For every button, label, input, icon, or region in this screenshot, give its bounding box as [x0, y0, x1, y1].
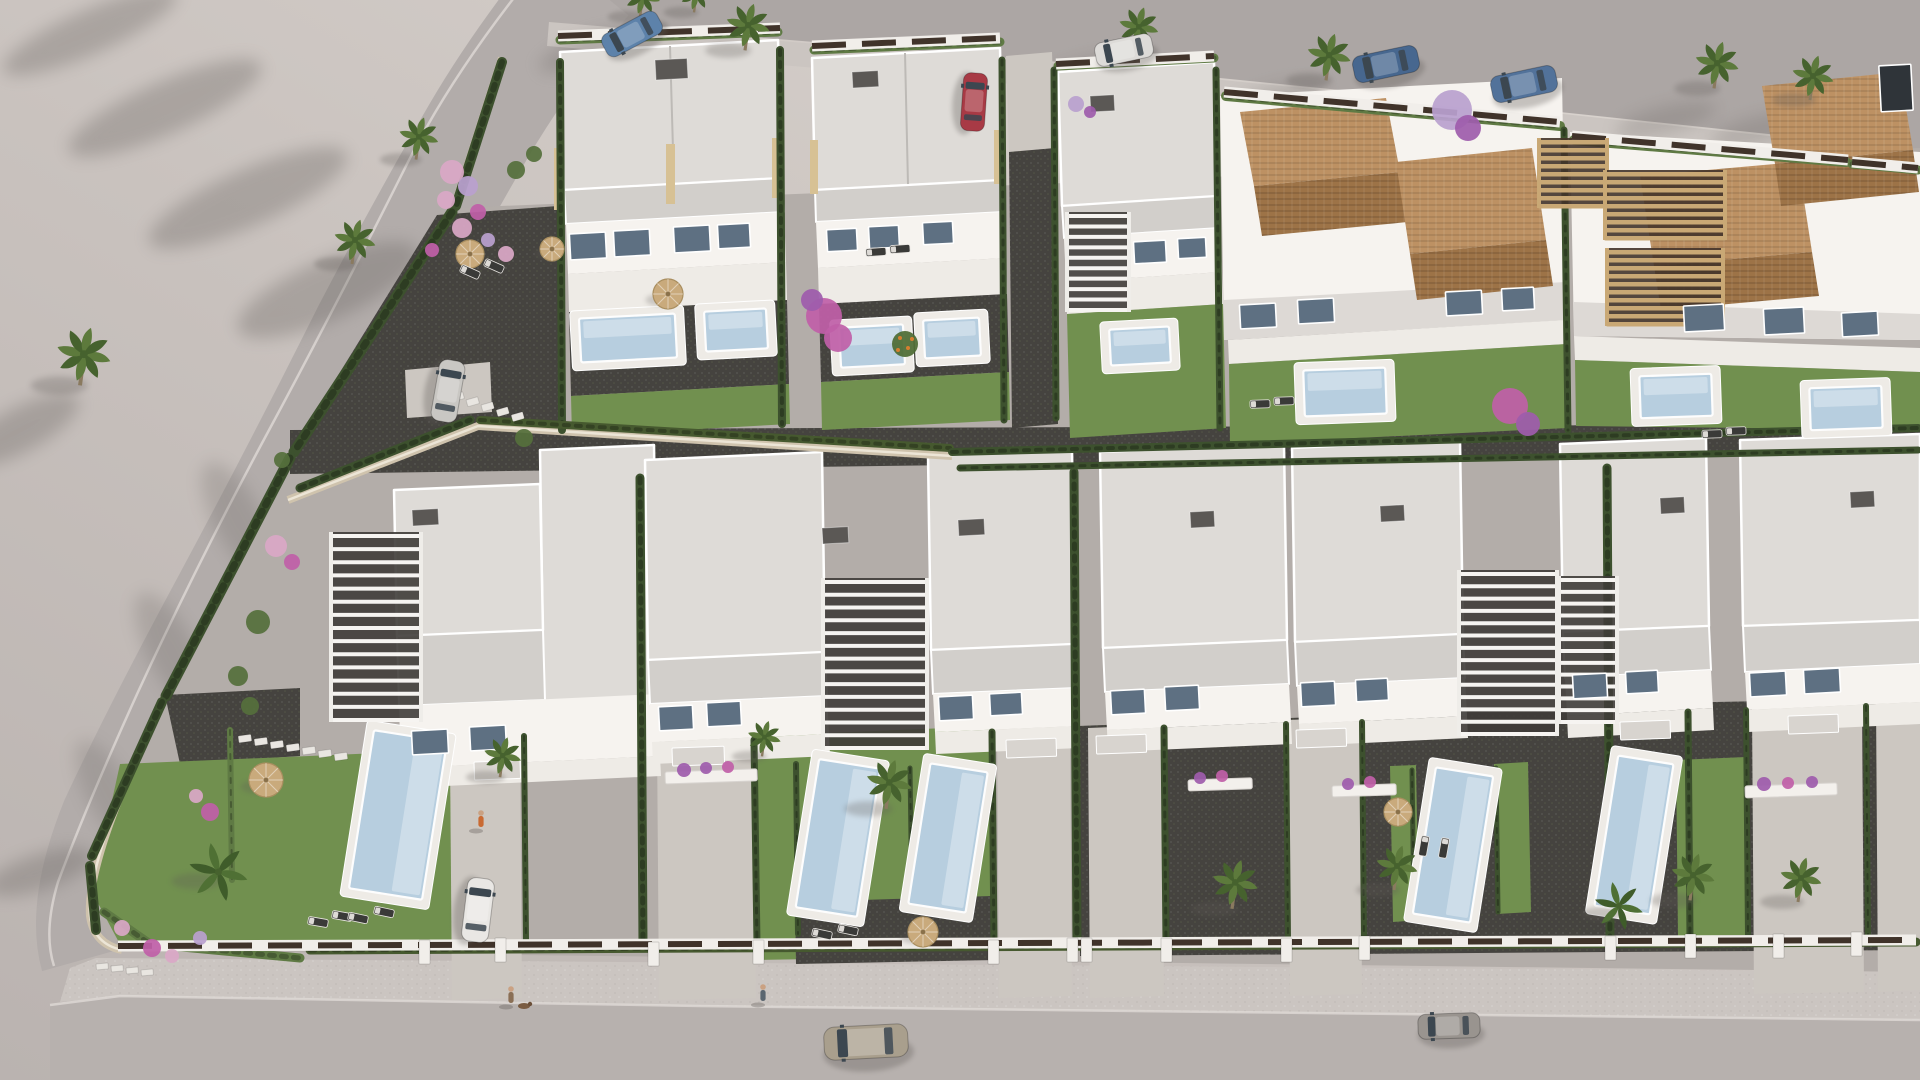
flower-bush — [193, 931, 207, 945]
pergola-slat — [822, 720, 928, 724]
car-windshield — [837, 1029, 849, 1057]
pergola-slat — [1558, 720, 1618, 724]
pergola-slat — [1458, 658, 1558, 662]
flower-bush — [898, 336, 902, 340]
pergola-rail — [821, 578, 825, 750]
pool-reflection — [708, 312, 763, 330]
parasol-pole — [264, 778, 269, 783]
pergola-slat — [330, 534, 422, 538]
pergola-slat — [1066, 287, 1130, 291]
pergola-slat — [1066, 308, 1130, 312]
roof-hatch — [822, 527, 849, 544]
pergola-rail — [419, 532, 423, 722]
flower-bush — [1194, 772, 1206, 784]
flower-bush — [1084, 106, 1096, 118]
window-glass — [1625, 670, 1658, 694]
parasol-pole — [666, 292, 671, 297]
palm-crown — [1394, 863, 1400, 869]
pergola-slat — [330, 613, 422, 617]
garden-bush — [515, 429, 533, 447]
pergola-slat — [1066, 235, 1130, 239]
pool-reflection — [1643, 377, 1708, 395]
gate-post — [753, 940, 764, 964]
flower-bush — [481, 233, 495, 247]
swimming-pool — [1630, 365, 1722, 426]
pergola-slat — [1066, 266, 1130, 270]
car-windshield — [1428, 1016, 1436, 1036]
lounger-pillow — [333, 911, 339, 918]
pergola-slat — [1066, 214, 1130, 218]
villa-roof-lower — [931, 644, 1077, 694]
sun-lounger — [1726, 427, 1746, 436]
swimming-pool — [1800, 377, 1892, 438]
palm-crown — [1616, 903, 1622, 909]
garage-door — [1296, 728, 1347, 748]
pergola-slat — [330, 652, 422, 656]
garden-gravel — [1009, 148, 1058, 428]
car-windshield — [965, 82, 984, 90]
window-glass — [1239, 303, 1276, 329]
pergola-slat — [1604, 228, 1726, 233]
window-glass — [1763, 307, 1804, 335]
person-shadow — [499, 1005, 513, 1010]
pergola-slat — [330, 692, 422, 696]
window-glass — [1683, 304, 1724, 332]
stepping-stone — [238, 734, 252, 743]
pergola-slat — [1538, 204, 1608, 209]
car-rear-window — [1462, 1016, 1469, 1035]
garden-bush — [228, 666, 248, 686]
car-mirror — [840, 1025, 844, 1028]
roof-hatch — [1850, 491, 1875, 508]
roof-hatch — [655, 58, 688, 80]
pergola-slat — [1458, 707, 1558, 711]
villa-roof — [1058, 62, 1218, 206]
palm-crown — [1798, 875, 1804, 881]
pergola-rail — [1537, 138, 1541, 208]
car-roof — [436, 376, 460, 403]
car-rear-window — [884, 1027, 894, 1054]
flower-bush — [1782, 777, 1794, 789]
dog-head — [528, 1002, 532, 1006]
pool-reflection — [1113, 330, 1166, 347]
stone-stair-wall — [666, 144, 675, 204]
pergola-slat — [1538, 180, 1608, 185]
pool-reflection — [1307, 371, 1382, 391]
pergola-slat — [1538, 188, 1608, 193]
pergola-slat — [330, 718, 422, 722]
flower-bush — [284, 554, 300, 570]
villa-roof — [928, 450, 1075, 650]
pergola-slat — [1558, 637, 1618, 641]
pergola-rail — [1457, 570, 1461, 736]
garden-bush — [274, 452, 290, 468]
stepping-stone — [302, 746, 316, 755]
driveway — [1752, 704, 1864, 994]
pergola-slat — [822, 733, 928, 737]
gate-post — [1081, 938, 1092, 962]
villa-roof-lower — [648, 652, 827, 704]
pergola-slat — [1558, 590, 1618, 594]
lounger-pillow — [867, 249, 872, 255]
pergola-slat — [1458, 646, 1558, 650]
window-glass — [1164, 685, 1199, 711]
lounger-pillow — [309, 917, 315, 924]
gate-post — [1605, 936, 1616, 960]
window-glass — [1841, 311, 1878, 337]
window-glass — [717, 223, 750, 249]
pergola-slat — [1066, 277, 1130, 281]
pergola-slat — [1458, 597, 1558, 601]
pergola-slat — [822, 644, 928, 648]
window-glass — [706, 701, 741, 727]
palm-crown — [1810, 73, 1816, 79]
gate-post — [988, 940, 999, 964]
flower-bush — [722, 761, 734, 773]
pergola-slat — [1558, 602, 1618, 606]
pergola-slat — [330, 639, 422, 643]
window-glass — [1749, 671, 1786, 697]
flower-bush — [201, 803, 219, 821]
driveway — [450, 748, 522, 1000]
gray-car-street — [1417, 1010, 1485, 1049]
driveway — [1006, 52, 1055, 152]
garden-bush — [507, 161, 525, 179]
flower-bush — [458, 176, 478, 196]
pergola-slat — [330, 679, 422, 683]
roof-hatch — [412, 509, 439, 526]
pergola-rail — [1615, 576, 1619, 724]
flower-bush — [452, 218, 472, 238]
palm-crown — [500, 753, 505, 758]
villa-roof — [1100, 444, 1287, 648]
swimming-pool — [695, 300, 778, 360]
pergola-slat — [1604, 196, 1726, 201]
flower-bush — [498, 246, 514, 262]
window-glass — [469, 725, 506, 751]
lounger-pillow — [1251, 401, 1256, 407]
pool-reflection — [1813, 389, 1878, 407]
sun-lounger — [890, 244, 911, 253]
flower-bush — [906, 346, 910, 350]
pergola-rail — [1603, 170, 1607, 240]
villa-roof — [645, 452, 825, 660]
pergola-slat — [1558, 661, 1618, 665]
pergola-slat — [1538, 196, 1608, 201]
palm-crown — [745, 22, 751, 28]
stepping-stone — [270, 740, 284, 749]
window-glass — [411, 729, 448, 755]
garage-door — [1788, 714, 1839, 734]
lounger-pillow — [1422, 837, 1429, 843]
pergola-slat — [1606, 258, 1724, 263]
villa-roof — [1292, 440, 1463, 642]
garden-bush — [246, 610, 270, 634]
garden-bush — [892, 331, 918, 357]
person-head — [508, 986, 514, 992]
pergola-slat — [822, 746, 928, 750]
stepping-stone — [96, 963, 108, 970]
villa-roof-lower — [1743, 620, 1920, 672]
palm-crown — [80, 350, 88, 358]
window-glass — [658, 705, 693, 731]
gate-post — [1773, 934, 1784, 958]
pergola-slat — [1066, 224, 1130, 228]
window-glass — [989, 692, 1022, 716]
stepping-stone — [318, 749, 332, 758]
pergola-slat — [1458, 621, 1558, 625]
driveway — [1288, 717, 1362, 996]
car-roof — [466, 895, 490, 922]
pergola-slat — [822, 669, 928, 673]
pergola-slat — [1604, 180, 1726, 185]
car-mirror — [1431, 1038, 1435, 1041]
pergola-slat — [1558, 649, 1618, 653]
pergola-rail — [1605, 248, 1609, 326]
pergola-slat — [330, 665, 422, 669]
flower-bush — [1364, 776, 1376, 788]
lounger-pillow — [1442, 839, 1449, 845]
window-glass — [1879, 64, 1913, 112]
pergola-slat — [330, 600, 422, 604]
car-roof — [1436, 1016, 1460, 1036]
gate-post — [495, 938, 506, 962]
flower-bush — [700, 762, 712, 774]
car-roof — [964, 89, 983, 112]
pergola-slat — [1606, 274, 1724, 279]
pergola-slat — [1538, 156, 1608, 161]
window-glass — [569, 232, 606, 260]
villa-roof — [1740, 434, 1920, 626]
gate-post — [1161, 938, 1172, 962]
pergola-slat — [1604, 188, 1726, 193]
pergola-slat — [1606, 266, 1724, 271]
pergola-slat — [822, 657, 928, 661]
flower-bush — [470, 204, 486, 220]
pergola-slat — [330, 547, 422, 551]
pergola-slat — [1558, 708, 1618, 712]
pergola-slat — [822, 682, 928, 686]
lounger-pillow — [891, 246, 896, 252]
car-mirror — [492, 892, 495, 896]
window-glass — [1177, 237, 1206, 258]
palm-crown — [1232, 879, 1239, 886]
pergola-slat — [1458, 683, 1558, 687]
pergola-slat — [330, 626, 422, 630]
gate-post — [419, 940, 430, 964]
roof-hatch — [1380, 505, 1405, 522]
car-mirror — [986, 85, 989, 89]
window-glass — [673, 225, 710, 253]
pergola-slat — [330, 587, 422, 591]
person-shadow — [469, 829, 483, 834]
lounger-pillow — [1703, 431, 1708, 437]
flower-bush — [1342, 778, 1354, 790]
pergola-slat — [822, 695, 928, 699]
roof-hatch — [958, 519, 985, 536]
lounger-pillow — [1275, 398, 1280, 404]
palm-crown — [1326, 52, 1332, 58]
pergola-slat — [822, 606, 928, 610]
gate-post — [648, 942, 659, 966]
timber-pergola — [1537, 138, 1609, 209]
window-glass — [1300, 681, 1335, 707]
flower-bush — [1068, 96, 1084, 112]
lounger-pillow — [1727, 428, 1732, 434]
roof-hatch — [1190, 511, 1215, 528]
person-body — [760, 990, 765, 1001]
pergola-slat — [1606, 298, 1724, 303]
pergola-slat — [1458, 720, 1558, 724]
pergola-slat — [1604, 212, 1726, 217]
stepping-stone — [111, 965, 123, 972]
pergola-slat — [1558, 625, 1618, 629]
palm-crown — [1714, 60, 1720, 66]
pergola-slat — [1066, 256, 1130, 260]
white-pergola — [1557, 576, 1619, 724]
flower-bush — [677, 763, 691, 777]
pergola-rail — [329, 532, 333, 722]
pergola-slat — [1538, 140, 1608, 145]
pergola-slat — [1538, 148, 1608, 153]
palm-crown — [762, 735, 767, 740]
pergola-slat — [1458, 670, 1558, 674]
terracotta-roof — [1396, 148, 1546, 254]
stone-stair-wall — [810, 140, 818, 194]
scene-canvas — [0, 0, 1920, 1080]
flower-bush — [265, 535, 287, 557]
gate-post — [1067, 938, 1078, 962]
garden-bush — [241, 697, 259, 715]
flower-bush — [1757, 777, 1771, 791]
parasol-pole — [921, 930, 926, 935]
flower-bush — [189, 789, 203, 803]
white-pergola — [821, 578, 929, 750]
flower-bush — [1516, 412, 1540, 436]
car-mirror — [842, 1059, 846, 1062]
sun-lounger — [866, 247, 887, 256]
palm-crown — [416, 134, 422, 140]
white-pergola — [329, 532, 423, 722]
pergola-slat — [330, 573, 422, 577]
window-glass — [922, 221, 953, 245]
sun-lounger — [1274, 397, 1294, 406]
pergola-slat — [1604, 236, 1726, 241]
pergola-slat — [1558, 578, 1618, 582]
garage-door — [1096, 734, 1147, 754]
sun-lounger — [1702, 430, 1722, 439]
pergola-slat — [1604, 172, 1726, 177]
person-body — [478, 816, 483, 827]
garden-lawn — [821, 372, 1010, 430]
window-glass — [1445, 290, 1482, 316]
garage-door — [1006, 738, 1057, 758]
palm-crown — [1136, 24, 1142, 30]
garage-door — [1620, 720, 1671, 740]
pergola-slat — [1606, 290, 1724, 295]
gate-post — [1281, 938, 1292, 962]
window-glass — [613, 229, 650, 257]
stepping-stone — [254, 737, 268, 746]
sun-lounger — [1250, 400, 1270, 409]
flower-bush — [801, 289, 823, 311]
aerial-render-of-villa-development — [0, 0, 1920, 1080]
person-body — [508, 992, 513, 1003]
car-mirror — [961, 84, 964, 88]
roof-hatch — [852, 71, 879, 88]
person-head — [760, 984, 766, 990]
pergola-slat — [822, 631, 928, 635]
roof-hatch — [1660, 497, 1685, 514]
flower-bush — [1455, 115, 1481, 141]
pergola-rail — [1065, 212, 1069, 312]
flower-bush — [824, 324, 852, 352]
pergola-slat — [1458, 572, 1558, 576]
gate-post — [1359, 936, 1370, 960]
pergola-slat — [1458, 634, 1558, 638]
pergola-slat — [330, 560, 422, 564]
palm-crown — [1690, 872, 1696, 878]
pergola-slat — [1558, 614, 1618, 618]
window-glass — [1133, 240, 1166, 264]
flower-bush — [1216, 770, 1228, 782]
stepping-stone — [286, 743, 300, 752]
driveway — [1088, 725, 1164, 998]
pergola-slat — [1066, 245, 1130, 249]
gate-post — [1685, 934, 1696, 958]
pergola-slat — [1458, 732, 1558, 736]
stepping-stone — [141, 969, 153, 976]
swimming-pool — [914, 309, 991, 367]
person-head — [478, 810, 484, 816]
white-pergola — [1457, 570, 1559, 736]
pergola-rail — [925, 578, 929, 750]
pergola-slat — [1606, 250, 1724, 255]
window-glass — [938, 695, 973, 721]
swimming-pool — [1100, 318, 1181, 374]
window-glass — [1572, 673, 1607, 699]
pergola-slat — [1458, 584, 1558, 588]
parasol-pole — [1396, 810, 1401, 815]
pergola-slat — [1066, 298, 1130, 302]
pergola-slat — [1458, 609, 1558, 613]
palm-crown — [886, 779, 893, 786]
flower-bush — [1806, 776, 1818, 788]
pergola-slat — [1604, 220, 1726, 225]
gate-post — [1851, 932, 1862, 956]
pool-reflection — [927, 321, 976, 338]
parasol-pole — [550, 247, 555, 252]
flower-bush — [114, 920, 130, 936]
garden-bush — [526, 146, 542, 162]
palm-crown — [352, 237, 358, 243]
driveway — [997, 724, 1072, 998]
pergola-slat — [330, 705, 422, 709]
flower-bush — [896, 348, 900, 352]
parasol-pole — [468, 252, 473, 257]
driveway — [1876, 700, 1920, 992]
planter-wall — [1332, 784, 1396, 797]
pergola-slat — [1458, 695, 1558, 699]
pergola-slat — [1604, 204, 1726, 209]
window-glass — [1110, 689, 1145, 715]
window-glass — [1355, 678, 1388, 702]
window-glass — [826, 228, 857, 252]
pergola-slat — [1606, 282, 1724, 287]
person-shadow — [751, 1003, 765, 1008]
pergola-slat — [822, 618, 928, 622]
timber-pergola — [1603, 170, 1727, 241]
